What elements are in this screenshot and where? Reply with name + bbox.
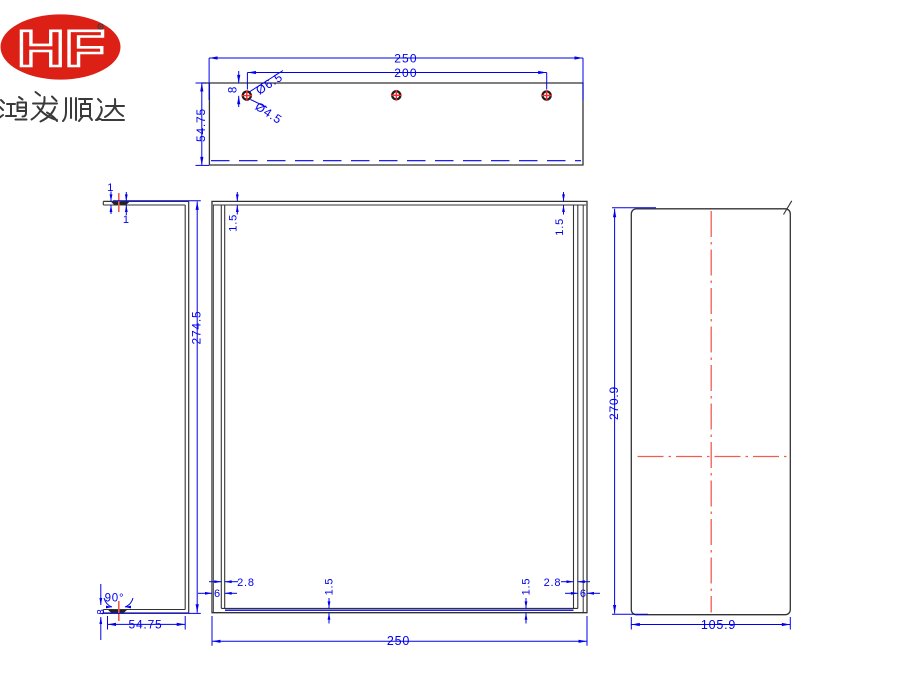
svg-text:2.8: 2.8 [544,577,562,589]
svg-text:274.5: 274.5 [189,310,203,344]
svg-text:3: 3 [96,608,107,614]
svg-text:2.8: 2.8 [237,577,255,589]
svg-text:8: 8 [227,86,239,93]
svg-text:1.5: 1.5 [521,578,533,596]
svg-text:1.5: 1.5 [324,578,336,596]
svg-text:90°: 90° [105,593,125,605]
svg-text:250: 250 [387,634,410,648]
svg-text:250: 250 [394,51,418,65]
svg-text:1: 1 [123,214,130,226]
svg-text:6: 6 [214,588,221,600]
svg-text:270.9: 270.9 [607,386,621,420]
svg-text:105.9: 105.9 [701,618,736,632]
svg-text:54.75: 54.75 [128,618,162,632]
svg-text:6: 6 [580,588,587,600]
svg-text:200: 200 [394,66,418,80]
svg-text:1.5: 1.5 [554,218,566,236]
svg-text:1.5: 1.5 [228,214,240,232]
svg-text:HF: HF [17,20,105,77]
svg-text:54.75: 54.75 [194,108,208,142]
